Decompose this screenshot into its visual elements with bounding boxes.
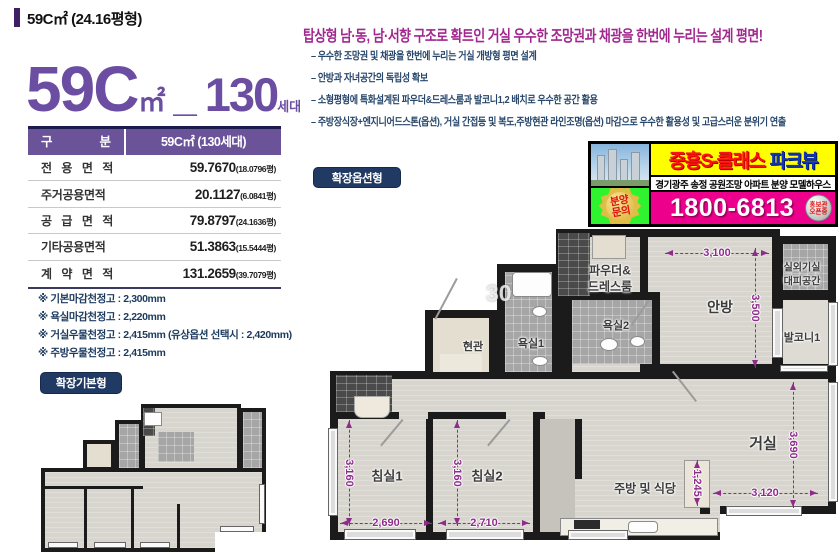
room-label-kitchen: 주방 및 식당 xyxy=(614,480,676,497)
wall xyxy=(426,419,433,532)
feature-bullet: – 주방장식장+엔지니어드스톤(옵션), 거실 간접등 및 복도,주방현관 라인… xyxy=(311,114,786,129)
wall xyxy=(533,412,545,419)
phone-number: 1800-6813 xyxy=(670,194,794,223)
dim-living-height: 3,690 xyxy=(787,431,799,459)
title-accent-bar xyxy=(14,8,20,27)
mini-wall xyxy=(177,504,180,548)
page-title: 59C ㎡ _ 130 세대 xyxy=(26,52,301,126)
table-row: 공 급 면 적 79.8797(24.1636평) xyxy=(28,208,281,234)
dressroom-closet xyxy=(558,233,590,296)
room-label-anbang: 안방 xyxy=(707,297,733,317)
note-ceiling-kitchen: ※ 주방우물천정고 : 2,415mm xyxy=(38,345,165,360)
row-value: 131.2659(39.7079평) xyxy=(126,266,281,281)
inquiry-starburst: 분양문의 xyxy=(591,188,649,224)
row-value-number: 131.2659 xyxy=(183,266,236,281)
title-size: 59C xyxy=(26,52,137,126)
brand-suffix: 파크뷰 xyxy=(769,146,817,173)
flyer-page: 59C㎡ (24.16평형) 59C ㎡ _ 130 세대 구 분 59C㎡ (… xyxy=(0,0,840,552)
mini-wall xyxy=(131,489,134,548)
mini-floor-entry xyxy=(87,444,111,467)
dim-bed1-width: 2,690 xyxy=(372,517,400,529)
row-label: 전 용 면 적 xyxy=(28,159,126,176)
table-row: 기타공용면적 51.3863(15.5444평) xyxy=(28,234,281,260)
bath1-toilet xyxy=(532,356,548,366)
room-label-bed2: 침실2 xyxy=(471,466,502,485)
window-living-right xyxy=(828,382,838,502)
open-badge: 홍보관오픈중 xyxy=(805,195,832,222)
row-value: 20.1127(6.0841평) xyxy=(126,187,281,202)
window-balcony xyxy=(828,302,838,366)
row-value-number: 51.3863 xyxy=(190,239,236,254)
main-floorplan: 30 파우더& 드레스룸 안방 실외기실 대피공간 발코니1 욕실2 욕실1 현… xyxy=(328,228,840,550)
feature-headline: 탑상형 남·동, 남·서향 구조로 확트인 거실 우수한 조망권과 채광을 한번… xyxy=(303,24,763,46)
dim-bed1-height: 3,160 xyxy=(343,459,355,487)
room-label-balcony: 발코니1 xyxy=(784,329,820,345)
mini-tub xyxy=(144,412,162,426)
wall xyxy=(575,419,582,479)
row-label: 주거공용면적 xyxy=(28,186,126,203)
title-unit: ㎡ xyxy=(138,80,163,119)
balcony-door xyxy=(780,365,828,372)
floor-utility xyxy=(540,419,575,532)
building-shape xyxy=(631,152,640,181)
title-household-count: 130 xyxy=(205,67,277,122)
room-label-bed1: 침실1 xyxy=(371,466,402,485)
ad-brand-row: 중흥S-클래스 파크뷰 xyxy=(651,144,835,177)
window-kitchen xyxy=(568,530,628,540)
bath2-sink xyxy=(600,338,618,351)
mini-window xyxy=(48,542,78,548)
unit-type-heading: 59C㎡ (24.16평형) xyxy=(27,8,142,29)
table-row: 주거공용면적 20.1127(6.0841평) xyxy=(28,181,281,207)
building-shape xyxy=(620,159,628,181)
ad-banner: 분양문의 중흥S-클래스 파크뷰 경기광주 송정 공원조망 아파트 분양 모델하… xyxy=(588,141,838,227)
note-ceiling-bath: ※ 욕실마감천정고 : 2,220mm xyxy=(38,309,165,324)
building-shape xyxy=(597,155,605,181)
open-badge-line2: 오픈중 xyxy=(810,208,828,215)
powder-cabinet xyxy=(592,235,626,259)
watermark: 30 xyxy=(486,280,512,307)
badge-option-expansion: 확장옵션형 xyxy=(313,167,401,188)
row-value-number: 20.1127 xyxy=(195,187,240,202)
room-label-entrance: 현관 xyxy=(463,338,483,354)
mini-floorplan xyxy=(40,404,270,552)
mini-window xyxy=(259,484,265,524)
dim-anbang-width: 3,100 xyxy=(703,247,731,259)
bathtub xyxy=(512,272,552,297)
mini-wall xyxy=(43,486,143,489)
title-separator: _ xyxy=(173,73,194,121)
anbang-balcony-window xyxy=(772,308,783,358)
row-value-sub: (6.0841평) xyxy=(240,191,276,201)
mini-floor-bath xyxy=(119,424,139,468)
mini-floor-balcony xyxy=(243,412,262,468)
corridor-cabinet xyxy=(354,396,390,418)
open-badge-line1: 홍보관 xyxy=(810,201,828,208)
area-table-header: 구 분 59C㎡ (130세대) xyxy=(28,129,281,155)
row-value: 51.3863(15.5444평) xyxy=(126,239,281,254)
wall xyxy=(533,419,540,532)
inquiry-label: 분양문의 xyxy=(609,194,631,218)
table-row: 전 용 면 적 59.7670(18.0796평) xyxy=(28,155,281,181)
mini-cutout xyxy=(215,532,266,552)
feature-bullet: – 소형평형에 특화설계된 파우더&드레스룸과 발코니1,2 배치로 우수한 공… xyxy=(311,92,598,107)
row-value-sub: (24.1636평) xyxy=(236,217,276,227)
row-value-number: 59.7670 xyxy=(190,160,236,175)
mini-window xyxy=(94,542,126,548)
row-label: 계 약 면 적 xyxy=(28,265,126,282)
badge-basic-expansion: 확장기본형 xyxy=(40,372,122,394)
row-value-sub: (18.0796평) xyxy=(236,164,276,174)
ground-strip xyxy=(591,180,649,186)
row-value-number: 79.8797 xyxy=(190,213,236,228)
dim-anbang-height: 3,500 xyxy=(749,294,761,322)
note-ceiling-living: ※ 거실우물천정고 : 2,415mm (유상옵션 선택시 : 2,420mm) xyxy=(38,327,292,342)
table-row: 계 약 면 적 131.2659(39.7079평) xyxy=(28,261,281,287)
room-label-powder1: 파우더& xyxy=(589,262,631,279)
plan-cutout xyxy=(720,514,838,540)
row-value: 79.8797(24.1636평) xyxy=(126,213,281,228)
room-label-outdoor2: 대피공간 xyxy=(784,273,821,288)
title-household-unit: 세대 xyxy=(277,96,301,115)
dim-living-width: 3,120 xyxy=(751,487,779,499)
room-label-living: 거실 xyxy=(749,433,777,454)
note-ceiling-basic: ※ 기본마감천정고 : 2,300mm xyxy=(38,291,165,306)
room-label-bath2: 욕실2 xyxy=(603,317,629,333)
entrance-step xyxy=(440,354,482,372)
bath2-toilet xyxy=(630,336,645,347)
room-label-bath1: 욕실1 xyxy=(518,335,544,351)
row-label: 기타공용면적 xyxy=(28,238,126,255)
area-table: 구 분 59C㎡ (130세대) 전 용 면 적 59.7670(18.0796… xyxy=(28,126,281,289)
area-table-header-right: 59C㎡ (130세대) xyxy=(126,129,281,155)
stove xyxy=(574,520,600,529)
wall xyxy=(428,412,506,419)
room-label-outdoor1: 실외기실 xyxy=(784,259,821,274)
ad-description: 경기광주 송정 공원조망 아파트 분양 모델하우스 xyxy=(651,177,835,192)
mini-window xyxy=(140,542,170,548)
dim-bed2-width: 2,710 xyxy=(470,517,498,529)
building-shape xyxy=(608,149,617,181)
row-label: 공 급 면 적 xyxy=(28,212,126,229)
apartment-photo xyxy=(591,144,649,188)
row-value: 59.7670(18.0796평) xyxy=(126,160,281,175)
room-label-powder2: 드레스룸 xyxy=(588,278,632,295)
mini-bath2 xyxy=(158,432,194,462)
inquiry-line2: 문의 xyxy=(611,203,631,218)
bath1-sink xyxy=(532,306,547,317)
kitchen-sink xyxy=(628,521,658,533)
brand-name: 중흥S-클래스 xyxy=(669,146,765,173)
feature-bullet: – 우수한 조망권 및 채광을 한번에 누리는 거실 개방형 평면 설계 xyxy=(311,48,536,63)
dim-bed2-height: 3,160 xyxy=(451,459,463,487)
ad-phone-row: 1800-6813 홍보관오픈중 xyxy=(651,192,835,224)
window-bed2 xyxy=(446,529,524,540)
window-bed1-left xyxy=(328,428,338,516)
ad-left-column: 분양문의 xyxy=(591,144,651,224)
mini-wall xyxy=(84,489,87,548)
ad-right-column: 중흥S-클래스 파크뷰 경기광주 송정 공원조망 아파트 분양 모델하우스 18… xyxy=(651,144,835,224)
row-value-sub: (39.7079평) xyxy=(236,270,276,280)
wall xyxy=(652,292,660,372)
wall xyxy=(640,229,648,295)
window-bed1 xyxy=(344,529,416,540)
area-table-header-left: 구 분 xyxy=(28,129,126,155)
mini-window xyxy=(220,526,254,532)
feature-bullet: – 안방과 자녀공간의 독립성 확보 xyxy=(311,70,428,85)
dim-kitchen: 1,245 xyxy=(691,469,703,497)
row-value-sub: (15.5444평) xyxy=(236,243,276,253)
